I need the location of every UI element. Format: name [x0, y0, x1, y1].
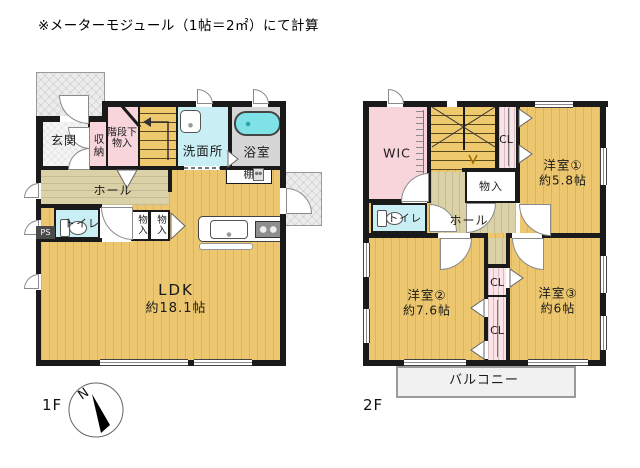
- label-mono-2: 物入: [155, 215, 165, 236]
- label-washroom: 洗面所: [183, 144, 224, 157]
- window: [363, 309, 370, 343]
- cl-bottom-door-marker: [470, 298, 486, 319]
- cl-divider: [488, 295, 506, 297]
- label-mono-2f: 物入: [479, 181, 503, 193]
- cl-bottom-door-marker: [470, 340, 486, 361]
- label-balcony: バルコニー: [449, 374, 519, 388]
- wall: [168, 170, 172, 192]
- label-shelf: 棚: [244, 171, 255, 182]
- kitchen-lower-counter: [199, 243, 253, 250]
- hall-strip-2f: [488, 238, 506, 266]
- washbasin-icon: [180, 110, 201, 133]
- casement-window-arc: [24, 183, 39, 198]
- casement-window-arc: [197, 89, 213, 104]
- wall: [506, 235, 510, 363]
- compass-icon: N: [66, 381, 126, 441]
- label-toilet-2f: トイレ: [388, 213, 423, 224]
- label-room3: 洋室③: [538, 286, 577, 299]
- under-stair-diagonal: [120, 103, 142, 129]
- casement-window-arc: [24, 274, 39, 289]
- window: [194, 359, 252, 366]
- label-shuno: 収納: [92, 134, 103, 159]
- stairs-1f-arrow: [140, 104, 176, 168]
- window: [100, 359, 188, 366]
- wall: [40, 204, 102, 208]
- kitchen-sink-icon: [210, 220, 248, 239]
- label-under-stairs: 階段下 物入: [107, 129, 137, 150]
- bathtub-icon: [234, 111, 281, 136]
- label-bath: 浴室: [243, 145, 270, 158]
- floor-label-1f: 1F: [42, 396, 62, 414]
- bath-door-marker: [227, 150, 240, 168]
- label-cl-bottom: CL: [490, 325, 504, 337]
- casement-window-arc: [388, 89, 404, 104]
- casement-window-arc: [253, 89, 269, 104]
- window: [528, 359, 588, 366]
- cl-top-door-marker: [518, 144, 534, 165]
- sliding-door-track: [184, 167, 220, 169]
- window: [600, 256, 607, 293]
- label-hall-2f: ホール: [449, 215, 488, 228]
- wall: [280, 101, 286, 366]
- cl-mid-door-marker: [509, 268, 525, 289]
- window: [363, 243, 370, 277]
- label-ldk: LDK: [158, 283, 194, 299]
- label-mono-1: 物入: [136, 215, 146, 236]
- label-wic: WIC: [383, 146, 411, 159]
- label-room2-size: 約7.6帖: [403, 305, 451, 318]
- floor-label-2f: 2F: [363, 396, 383, 414]
- window: [600, 316, 607, 350]
- label-cl-top: CL: [499, 134, 513, 146]
- label-toilet-1f: トイレ: [64, 218, 100, 230]
- label-room1-size: 約5.8帖: [539, 175, 587, 188]
- cl-top-door-marker: [518, 108, 534, 129]
- window: [404, 359, 466, 366]
- label-room1: 洋室①: [543, 158, 582, 171]
- module-note: ※メーターモジュール（1帖＝2㎡）にて計算: [38, 14, 319, 34]
- label-room3-size: 約6帖: [541, 303, 576, 316]
- stove-icon: [255, 221, 281, 238]
- wall: [102, 101, 107, 122]
- mono-door-marker: [170, 212, 187, 240]
- label-hall-1f: ホール: [93, 185, 132, 198]
- pipe-space: PS: [36, 226, 55, 239]
- window: [600, 148, 607, 185]
- floorplan-canvas: ※メーターモジュール（1帖＝2㎡）にて計算: [0, 0, 640, 468]
- window: [535, 101, 573, 108]
- label-cl-mid: CL: [490, 277, 504, 289]
- label-ldk-size: 約18.1帖: [146, 302, 207, 316]
- meter-box: [253, 168, 264, 181]
- label-room2: 洋室②: [407, 288, 446, 301]
- stairs-2f-winders: [431, 105, 497, 170]
- label-genkan: 玄関: [51, 135, 77, 148]
